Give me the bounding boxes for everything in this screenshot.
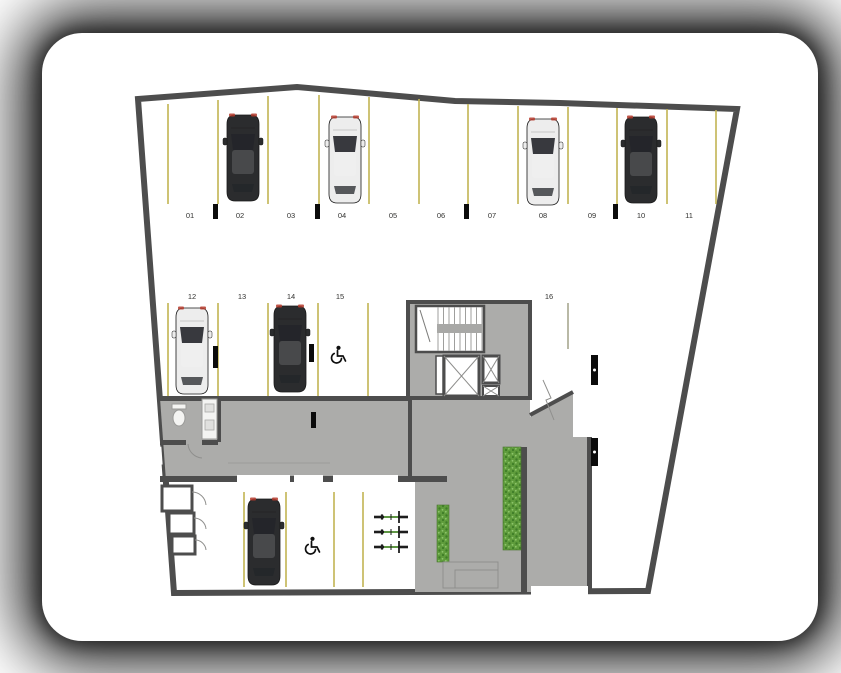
- bicycle-parking: [374, 511, 408, 553]
- staircase: [416, 306, 484, 352]
- spot-label: 13: [238, 292, 246, 301]
- spot-label: 02: [236, 211, 244, 220]
- toilet-icon: [172, 404, 186, 409]
- garage-entrance-opening: [531, 586, 588, 598]
- elevator: [436, 356, 499, 396]
- spot-labels: 01 02 03 04 05 06 07 08 09 10 11 12 13 1…: [186, 211, 693, 301]
- car-spot-02: [223, 114, 263, 202]
- accessible-icon: [306, 537, 320, 554]
- spot-label: 11: [685, 211, 693, 220]
- screenshot-stage: 01 02 03 04 05 06 07 08 09 10 11 12 13 1…: [0, 0, 841, 673]
- spot-label: 12: [188, 292, 196, 301]
- spot-label: 04: [338, 211, 346, 220]
- spot-label: 08: [539, 211, 547, 220]
- parking-floorplan: 01 02 03 04 05 06 07 08 09 10 11 12 13 1…: [0, 0, 841, 673]
- spot-label: 06: [437, 211, 445, 220]
- spot-label: 01: [186, 211, 194, 220]
- spot-label: 09: [588, 211, 596, 220]
- spot-label: 03: [287, 211, 295, 220]
- spot-label: 05: [389, 211, 397, 220]
- spot-label: 15: [336, 292, 344, 301]
- bicycle-icon: [374, 526, 408, 538]
- car-spot-04: [325, 116, 365, 204]
- ramp-driveway: [530, 393, 590, 592]
- car-spot-14: [270, 305, 310, 393]
- car-spot-12: [172, 307, 212, 395]
- car-spot-10: [621, 116, 661, 204]
- spot-label: 07: [488, 211, 496, 220]
- spot-label: 10: [637, 211, 645, 220]
- spot-label: 16: [545, 292, 553, 301]
- car-spot-08: [523, 118, 563, 206]
- accessible-icon: [332, 346, 346, 363]
- bicycle-icon: [374, 511, 408, 523]
- bicycle-icon: [374, 541, 408, 553]
- spot-label: 14: [287, 292, 295, 301]
- car-lower-area: [244, 498, 284, 586]
